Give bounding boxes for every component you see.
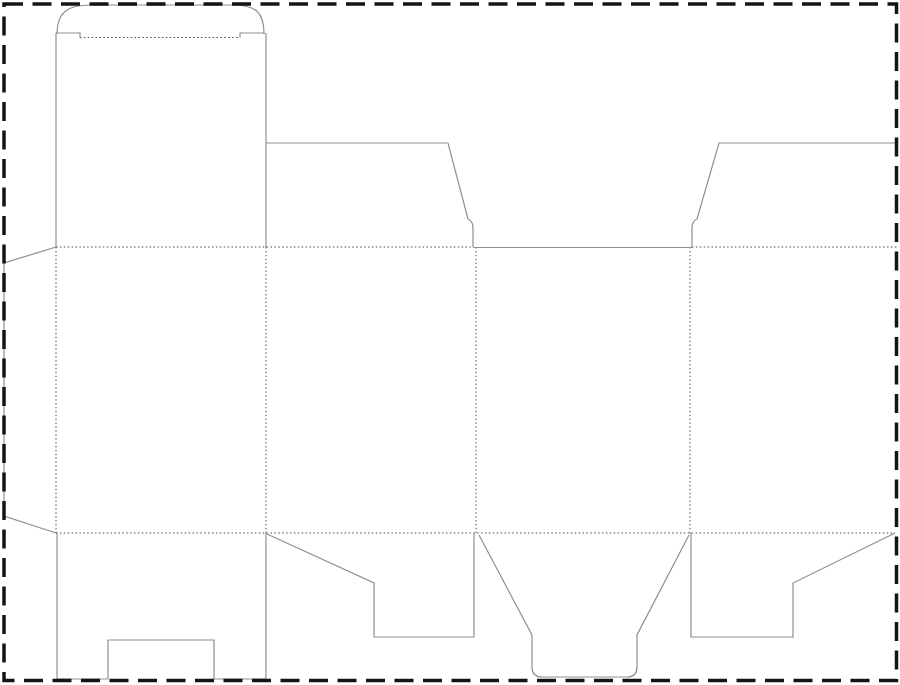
bottom-flap-panel1-cut-line	[57, 533, 266, 679]
top-dust-flap-left-cut-line	[266, 143, 473, 247]
box-dieline-drawing	[0, 0, 900, 685]
tuck-slit-left-cut-line	[56, 33, 80, 38]
tuck-slit-right-cut-line	[240, 33, 265, 38]
top-dust-flap-right-cut-line	[692, 143, 897, 247]
dashed-page-border	[4, 4, 897, 681]
bottom-flap-panel4-cut-line	[691, 533, 895, 637]
bottom-flap-panel2-cut-line	[267, 533, 474, 637]
tuck-flap-arc-cut-line	[57, 5, 264, 34]
bottom-tuck-flap-panel3-cut-line	[479, 535, 689, 677]
glue-flap-outline-cut-line	[4, 247, 56, 533]
dieline-page	[0, 0, 900, 685]
